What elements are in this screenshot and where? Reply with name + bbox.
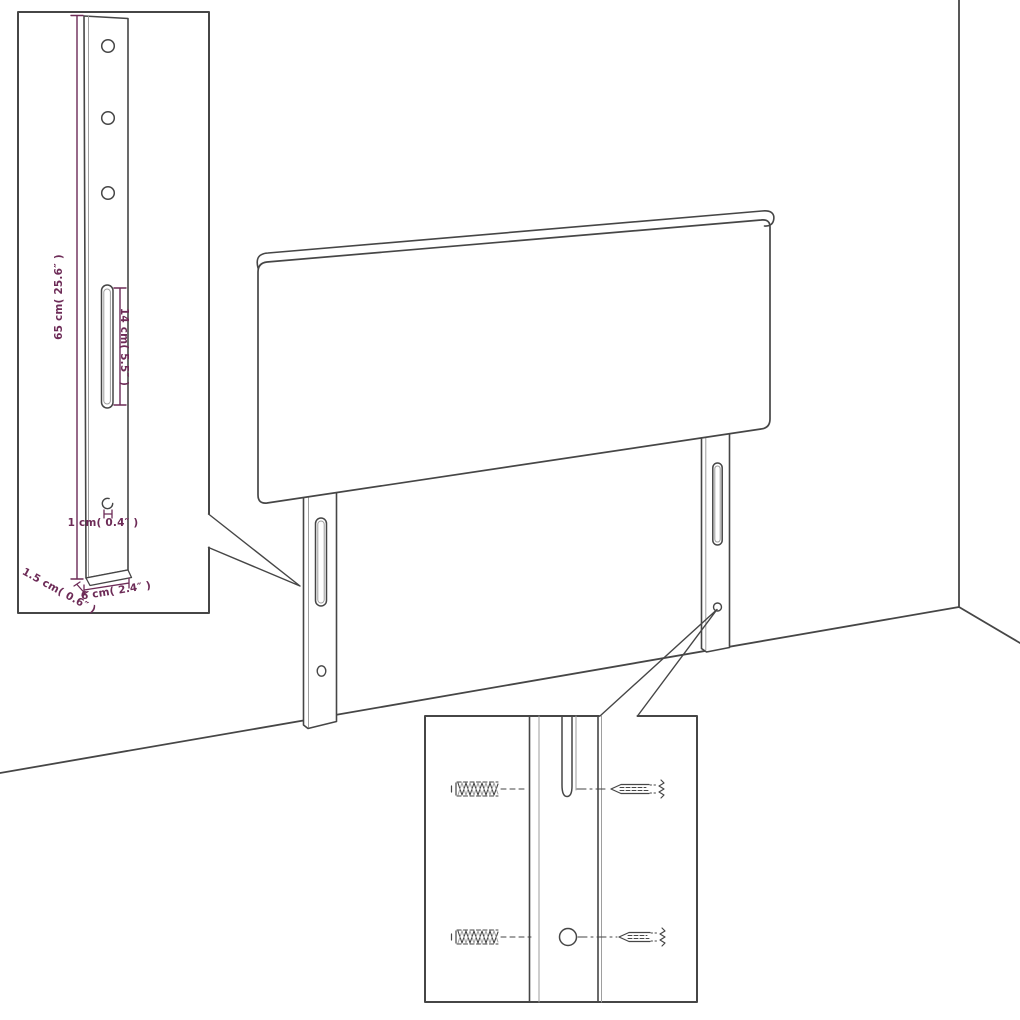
fixing-row-lower xyxy=(452,928,666,946)
fixing-row-upper xyxy=(452,780,665,798)
dim-label-height: 65 cm( 25.6″ ) xyxy=(53,254,65,340)
dim-label-hole: 1 cm( 0.4″ ) xyxy=(68,517,139,529)
headboard-leg-right xyxy=(702,415,730,652)
callout-lines xyxy=(209,514,301,586)
panel-face xyxy=(258,220,770,503)
strip-round-hole xyxy=(560,929,577,946)
callout-lines xyxy=(600,610,717,717)
strip-keyhole-channel xyxy=(562,716,572,797)
detail-leg-body xyxy=(84,16,128,578)
headboard-leg-left xyxy=(304,475,337,729)
floor-line xyxy=(0,607,1020,773)
screw-icon xyxy=(619,928,665,946)
wall-plug-icon xyxy=(452,782,499,796)
wall-plug-icon xyxy=(452,930,499,944)
callout-wedge-bottom-inset xyxy=(600,610,717,717)
inset-border xyxy=(425,716,697,1002)
dim-label-slot: 14 cm( 5.5″ ) xyxy=(118,308,130,386)
diagram-line-art xyxy=(0,0,1020,1020)
assembly-diagram: 65 cm( 25.6″ ) 14 cm( 5.5″ ) 1 cm( 0.4″ … xyxy=(0,0,1020,1020)
callout-wedge-top-inset xyxy=(209,514,301,586)
headboard-panel xyxy=(257,211,774,503)
bottom-inset-box xyxy=(425,716,697,1002)
dim-line-height xyxy=(71,16,83,580)
screw-icon xyxy=(611,780,664,798)
